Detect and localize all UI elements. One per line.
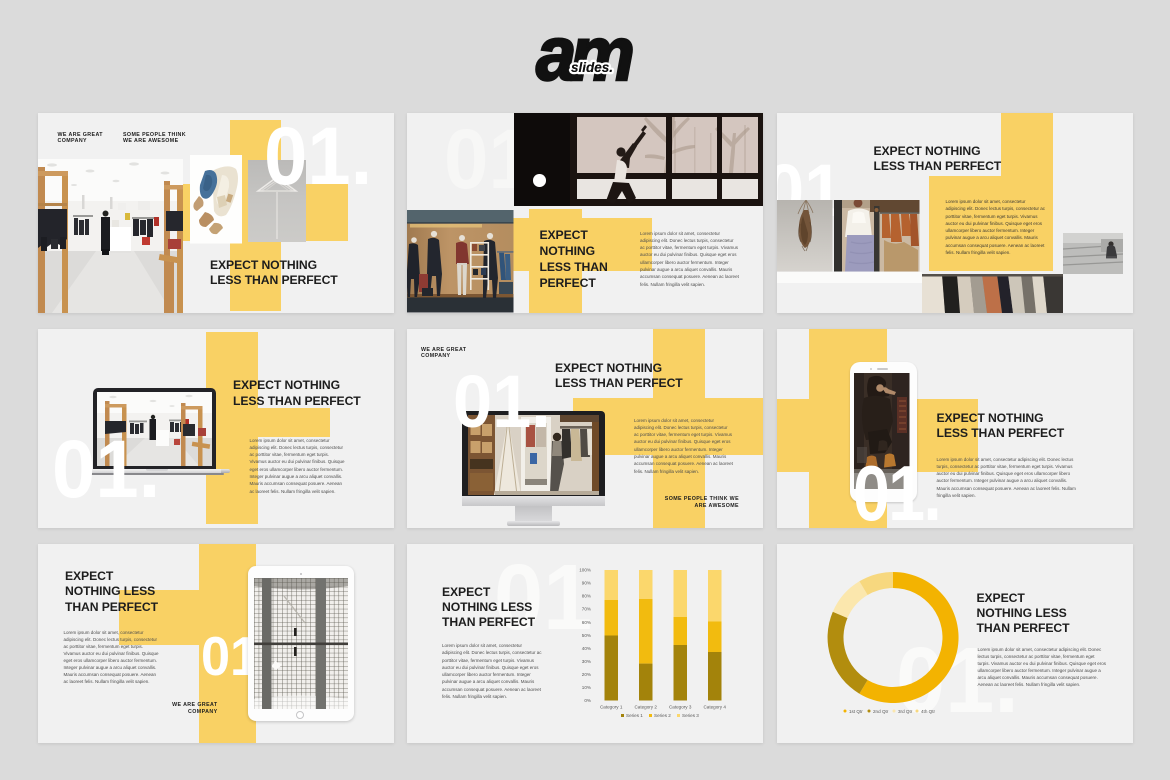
svg-text:3rd Qtr: 3rd Qtr bbox=[898, 709, 913, 714]
svg-text:40%: 40% bbox=[582, 646, 591, 651]
svg-text:Category 3: Category 3 bbox=[669, 705, 692, 710]
svg-text:1st Qtr: 1st Qtr bbox=[849, 709, 863, 714]
svg-text:30%: 30% bbox=[582, 659, 591, 664]
svg-text:2nd Qtr: 2nd Qtr bbox=[873, 709, 889, 714]
svg-text:80%: 80% bbox=[582, 594, 591, 599]
svg-text:10%: 10% bbox=[582, 685, 591, 690]
svg-text:Series 3: Series 3 bbox=[682, 713, 699, 718]
svg-text:Category 1: Category 1 bbox=[600, 705, 623, 710]
svg-text:50%: 50% bbox=[582, 633, 591, 638]
svg-text:0%: 0% bbox=[584, 698, 591, 703]
svg-text:20%: 20% bbox=[582, 672, 591, 677]
svg-text:Category 4: Category 4 bbox=[703, 705, 726, 710]
svg-text:Series 2: Series 2 bbox=[654, 713, 671, 718]
svg-text:70%: 70% bbox=[582, 607, 591, 612]
svg-text:90%: 90% bbox=[582, 581, 591, 586]
svg-text:100%: 100% bbox=[579, 568, 591, 573]
svg-text:Series 1: Series 1 bbox=[626, 713, 643, 718]
svg-text:slides.: slides. bbox=[571, 60, 613, 75]
svg-text:Category 2: Category 2 bbox=[634, 705, 657, 710]
svg-text:4th Qtr: 4th Qtr bbox=[921, 709, 936, 714]
svg-text:60%: 60% bbox=[582, 620, 591, 625]
